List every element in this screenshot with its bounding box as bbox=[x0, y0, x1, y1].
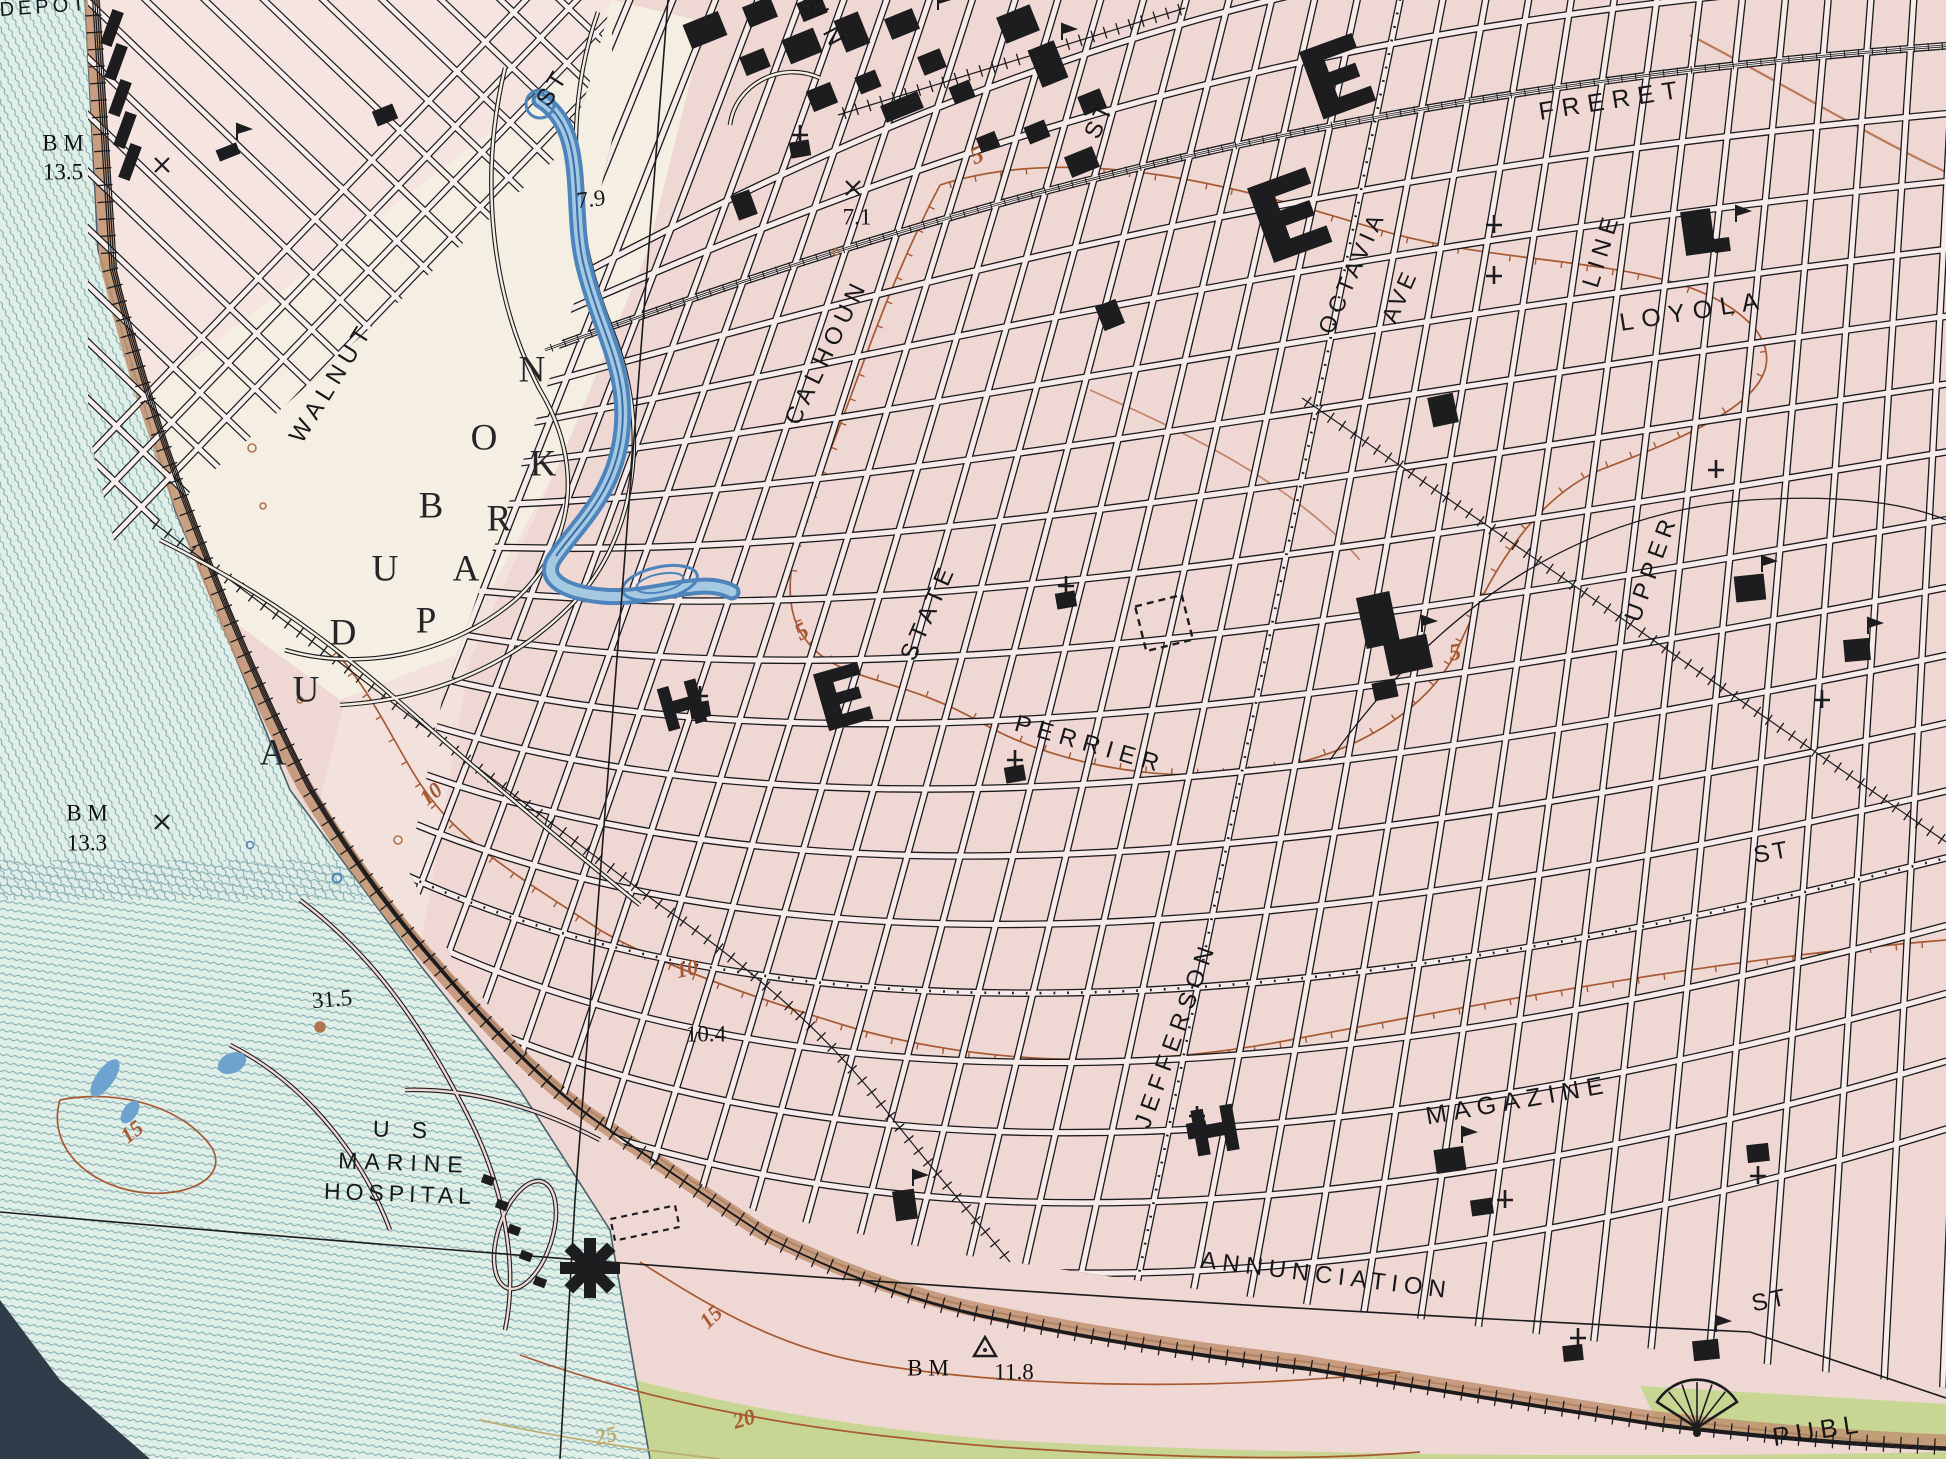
topo-map: WALNUTSTCALHOUNSTSTATEPERRIERJEFFERSONOC… bbox=[0, 0, 1946, 1459]
map-canvas bbox=[0, 0, 1946, 1459]
